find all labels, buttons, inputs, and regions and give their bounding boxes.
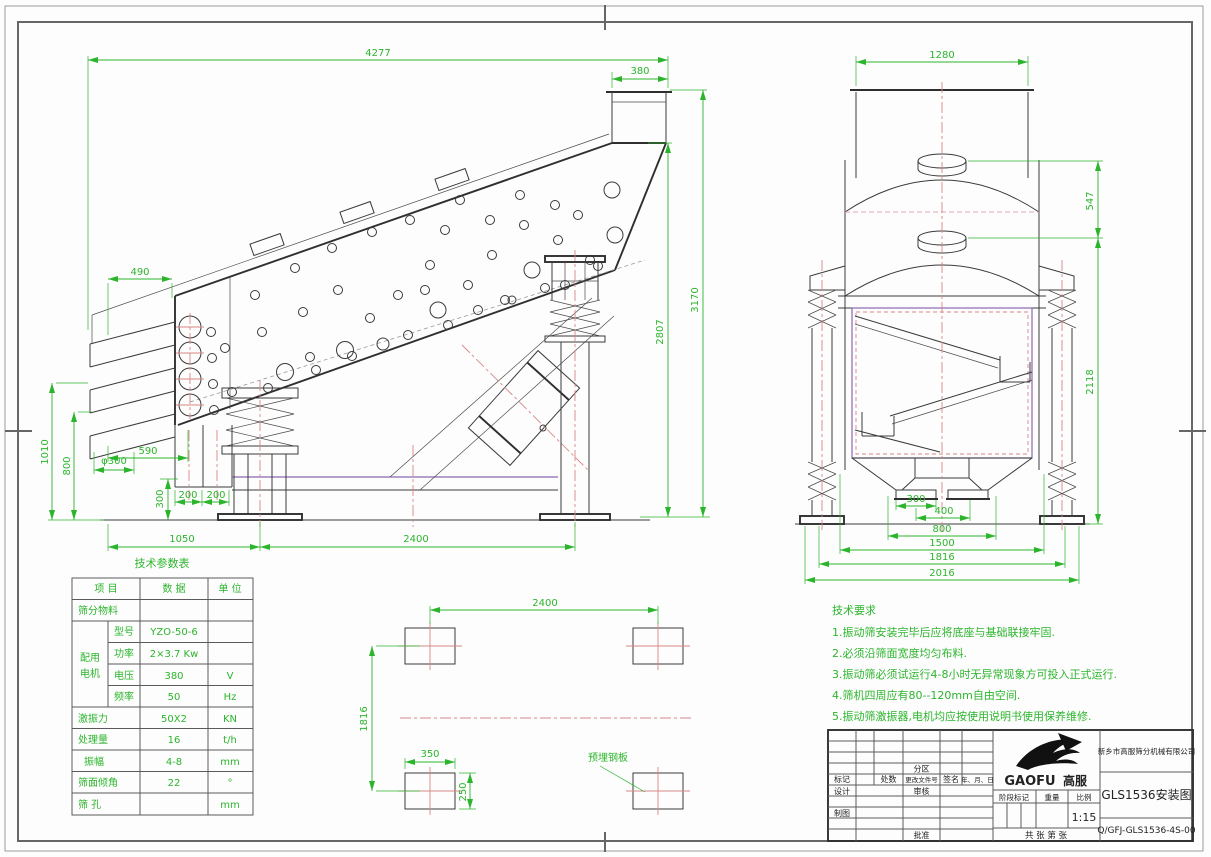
dim-1010: 1010 (40, 439, 51, 464)
tech-req-item: 5.振动筛激振器,电机均应按使用说明书使用保养维修. (832, 709, 1092, 723)
row-unit: KN (223, 714, 237, 725)
label-sign: 签名 (943, 774, 959, 784)
discharge-spout (606, 92, 672, 143)
label-audit: 审核 (914, 786, 930, 796)
tech-req-item: 2.必须沿筛面宽度均匀布料. (832, 646, 967, 660)
motor-axis-centerline (462, 345, 588, 470)
row-label: 筛 孔 (78, 798, 101, 811)
row-unit: mm (220, 800, 239, 811)
dim-300v: 300 (155, 489, 166, 508)
label-zone: 分区 (914, 765, 930, 774)
dim-1050: 1050 (169, 534, 194, 545)
label-scale: 比例 (1077, 792, 1092, 802)
dim-1280: 1280 (929, 50, 954, 61)
row-unit: t/h (223, 735, 237, 746)
dim-490: 490 (130, 267, 149, 278)
dim-800: 800 (62, 456, 73, 475)
right-support (1039, 260, 1084, 530)
logo-section: GAOFU 高服 阶段标记 重量 比例 1:15 共 张 第 张 (993, 730, 1100, 841)
row-material: 筛分物料 (78, 604, 118, 617)
left-support (800, 260, 845, 530)
dim-800f: 800 (932, 524, 951, 535)
cover-hatch (250, 169, 469, 256)
feed-chutes (90, 322, 175, 459)
dim-200a: 200 (178, 490, 197, 501)
rear-spring-support (540, 250, 610, 527)
title-block: 标记 处数 分区 更改文件号 签名 年、月、日 设计 审核 制图 批准 GAOF… (828, 730, 1196, 841)
vibration-motor (462, 345, 588, 470)
tech-req-title: 技术要求 (832, 604, 876, 617)
logo-text-sub: 高服 (1063, 773, 1088, 788)
th-item: 项 目 (94, 583, 117, 595)
dim-total-length: 4277 (365, 48, 390, 59)
row-label: 处理量 (78, 734, 108, 746)
drawing-number: Q/GFJ-GLS1536-4S-00 (1097, 826, 1195, 836)
embedded-plate-label: 预埋钢板 (588, 751, 628, 764)
tech-req-item: 3.振动筛必须试运行4-8小时无异常现象方可投入正式运行. (832, 667, 1117, 681)
dim-547: 547 (1085, 191, 1096, 210)
dim-590: 590 (138, 446, 157, 457)
motor-row-label: 电压 (114, 669, 134, 682)
label-date: 年、月、日 (961, 775, 994, 784)
motor-row-value: 380 (164, 671, 183, 682)
drawing-canvas: 4277 380 490 1010 800 φ300 590 200 200 (0, 0, 1211, 857)
dim-2400-side: 2400 (403, 534, 428, 545)
foundation-plan: 2400 1816 350 250 预埋钢板 (359, 598, 692, 815)
th-unit: 单 位 (218, 582, 241, 595)
row-value: 50X2 (161, 714, 187, 725)
motor-row-unit: V (227, 671, 234, 682)
tech-req-item: 1.振动筛安装完毕后应将底座与基础联接牢固. (832, 625, 1055, 639)
company-name: 新乡市高服筛分机械有限公司 (1098, 746, 1196, 756)
dim-200b: 200 (206, 490, 225, 501)
th-data: 数 据 (162, 582, 185, 595)
label-draft: 制图 (834, 808, 850, 818)
row-value: 22 (168, 778, 181, 789)
label-count: 处数 (881, 774, 897, 784)
front-view-dimensions: 1280 547 2118 300 400 800 1500 1816 (805, 50, 1103, 584)
feed-lower-box (175, 425, 232, 500)
dim-plan-2400: 2400 (532, 598, 557, 609)
motor-group-line2: 电机 (80, 667, 100, 680)
params-table: 技术参数表 项 目 数 据 单 位 筛分物料 配用 电机 型号 YZO-50-6… (72, 556, 253, 815)
dim-1816f: 1816 (929, 552, 954, 563)
motor-row-label: 型号 (114, 625, 134, 638)
title-section: 新乡市高服筛分机械有限公司 GLS1536安装图 Q/GFJ-GLS1536-4… (1097, 746, 1195, 836)
revision-grid (828, 730, 993, 841)
dim-plan-350: 350 (420, 749, 439, 760)
motor-row-value: 50 (168, 692, 181, 703)
tech-requirements: 技术要求 1.振动筛安装完毕后应将底座与基础联接牢固. 2.必须沿筛面宽度均匀布… (832, 604, 1117, 723)
label-sheet: 共 张 第 张 (1025, 830, 1068, 841)
engineering-drawing-sheet: 4277 380 490 1010 800 φ300 590 200 200 (0, 0, 1211, 857)
row-unit: mm (220, 757, 239, 768)
front-spring-support (218, 380, 302, 527)
dim-1500: 1500 (929, 538, 954, 549)
logo-text-main: GAOFU (1004, 774, 1055, 789)
motor-row-value: YZO-50-6 (149, 627, 197, 638)
plan-dimensions: 2400 1816 350 250 预埋钢板 (359, 598, 658, 809)
row-label: 激振力 (78, 712, 108, 725)
dim-2807: 2807 (655, 319, 666, 344)
label-approve: 批准 (914, 830, 930, 840)
tech-req-item: 4.筛机四周应有80--120mm自由空间. (832, 688, 1020, 702)
side-view: 4277 380 490 1010 800 φ300 590 200 200 (40, 48, 710, 551)
dim-plan-1816: 1816 (359, 706, 370, 731)
row-label: 振幅 (84, 755, 104, 768)
row-value: 16 (168, 735, 181, 746)
label-stage: 阶段标记 (999, 792, 1029, 802)
motor-row-unit: Hz (224, 692, 237, 703)
drawing-title: GLS1536安装图 (1101, 787, 1191, 802)
motor-row-label: 功率 (114, 647, 134, 660)
anchor-plates (398, 622, 692, 815)
label-change-no: 更改文件号 (905, 775, 938, 784)
row-value: 4-8 (166, 757, 182, 768)
motor-row-label: 频率 (114, 690, 134, 703)
scale-value: 1:15 (1072, 811, 1097, 824)
label-mark: 标记 (834, 774, 850, 784)
dim-3170: 3170 (690, 287, 701, 312)
feed-end-holes (176, 313, 219, 419)
motor-group-line1: 配用 (80, 652, 100, 664)
row-unit: ° (228, 778, 233, 789)
params-table-title: 技术参数表 (135, 556, 190, 570)
row-label: 筛面倾角 (78, 776, 118, 789)
dim-2016: 2016 (929, 568, 954, 579)
front-view: 1280 547 2118 300 400 800 1500 1816 (795, 50, 1103, 584)
dim-2118: 2118 (1085, 369, 1096, 394)
motor-row-value: 2×3.7 Kw (150, 649, 199, 660)
dim-outlet-width: 380 (630, 66, 649, 77)
screen-body (175, 143, 666, 425)
label-weight: 重量 (1045, 793, 1061, 802)
side-plate-holes (221, 182, 624, 397)
dim-plan-250: 250 (458, 782, 469, 801)
chassis (232, 298, 614, 490)
side-view-dimensions: 4277 380 490 1010 800 φ300 590 200 200 (40, 48, 710, 551)
dim-400: 400 (934, 506, 953, 517)
dim-300: 300 (906, 494, 925, 505)
label-design: 设计 (834, 786, 850, 796)
